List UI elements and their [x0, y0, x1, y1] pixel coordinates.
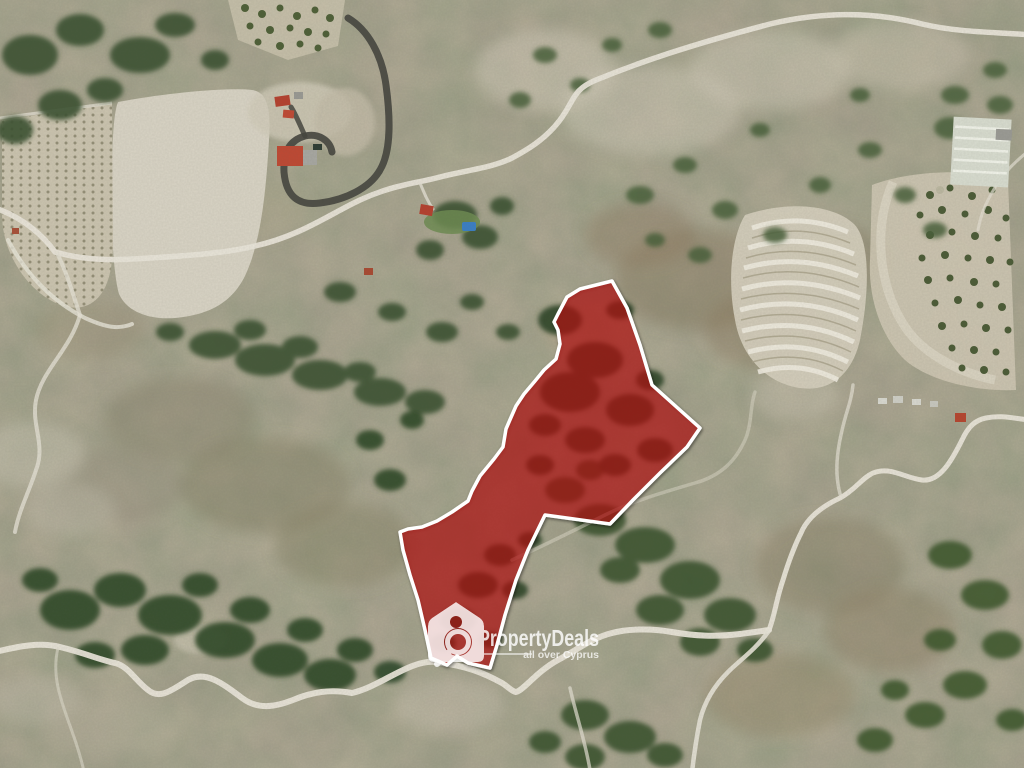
terrain-layer — [0, 0, 1024, 768]
watermark-brand: PropertyDeals — [478, 625, 599, 651]
photo-grain — [0, 0, 1024, 768]
watermark-tagline: all over Cyprus — [523, 649, 599, 661]
satellite-map: PropertyDeals all over Cyprus — [0, 0, 1024, 768]
